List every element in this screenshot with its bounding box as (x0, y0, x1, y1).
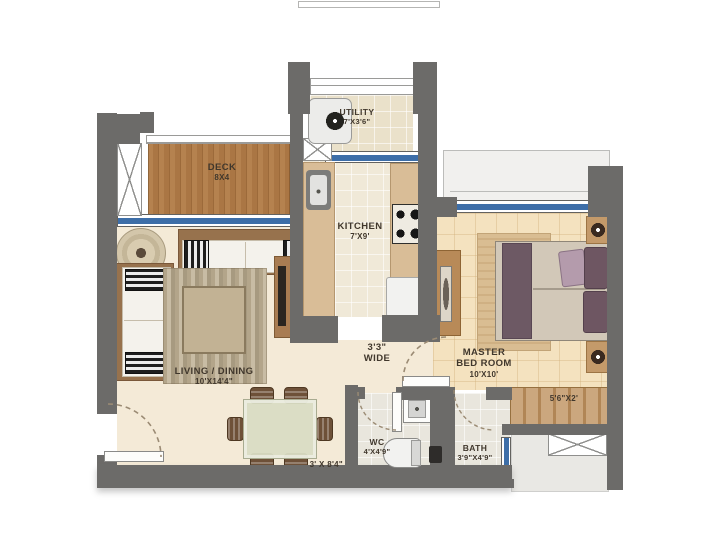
wall-bath-top (486, 387, 512, 400)
entrance-door-leaf (104, 451, 164, 462)
bed-pillow-bottom (583, 291, 608, 333)
master-dim: 10'X10' (448, 370, 520, 380)
wardrobe-dim-label: 5'6"X2' (534, 394, 594, 404)
sofa-top-cushion-left (184, 240, 209, 270)
kitchen-label: KITCHEN 7'X9' (326, 221, 394, 242)
bath-name: BATH (446, 443, 504, 453)
sofa-left-cushion-top (125, 269, 168, 291)
deck-sliding-door (117, 214, 292, 227)
wall-wc-top-left (345, 387, 365, 399)
outdoor-duct (548, 433, 607, 456)
kitchen-service-window (325, 151, 423, 163)
passage-label: 3'3" WIDE (350, 342, 404, 365)
dining-dim: 3' X 8'4" (283, 460, 343, 470)
bath-dim: 3'9"X4'9" (446, 453, 504, 462)
dining-chair (227, 417, 244, 441)
wall-below-wardrobe (502, 424, 608, 435)
wall-topleft-b (140, 112, 154, 133)
utility-name: UTILITY (328, 107, 386, 117)
living-name: LIVING / DINING (156, 366, 272, 377)
sofa-left-seam (124, 320, 167, 321)
deck-label: DECK 8X4 (186, 162, 258, 183)
master-name-line2: BED ROOM (448, 358, 520, 369)
tv-screen (278, 266, 286, 326)
utility-label: UTILITY 7'X3'6" (328, 107, 386, 126)
wc-door-leaf (392, 392, 402, 432)
deck-name: DECK (186, 162, 258, 173)
bath-label: BATH 3'9"X4'9" (446, 443, 504, 462)
utility-dim: 7'X3'6" (328, 117, 386, 126)
washbasin-bowl (408, 400, 426, 418)
shaft-duct-left (117, 143, 142, 216)
wall-right (607, 215, 623, 490)
wall-master-top-stub (437, 197, 457, 217)
top-projection-line (298, 1, 440, 8)
master-door-leaf (402, 376, 450, 387)
utility-window (310, 78, 415, 95)
wc-dim: 4'X4'9" (353, 447, 401, 456)
deck-railing (146, 135, 294, 144)
sofa-top-seam (245, 242, 246, 269)
passage-wide: WIDE (350, 353, 404, 364)
wall-window-stub (500, 479, 514, 488)
wall-utility-column-left (288, 62, 310, 114)
dresser-mirror (440, 266, 452, 322)
wall-topleft-a (101, 114, 140, 144)
living-dim: 10'X14'4" (156, 377, 272, 387)
kitchen-sink-basin (310, 175, 327, 205)
coffee-table (182, 286, 246, 354)
master-window (455, 200, 592, 213)
master-name-line1: MASTER (448, 347, 520, 358)
wall-utility-column-right (413, 62, 437, 114)
dining-dim-label: 3' X 8'4" (283, 460, 343, 470)
master-window-ledge (443, 150, 610, 204)
wall-kitchen-left (290, 95, 303, 343)
deck-dim: 8X4 (186, 173, 258, 183)
wall-kitchen-right (418, 95, 437, 319)
shower-head (429, 446, 442, 463)
wc-name: WC (353, 437, 401, 447)
kitchen-name: KITCHEN (326, 221, 394, 232)
master-window-sill-line (450, 191, 593, 192)
bed-runner (502, 243, 532, 339)
wardrobe-dim: 5'6"X2' (534, 394, 594, 404)
wall-left-upper (97, 113, 117, 414)
wall-kitchen-bottom-left (303, 316, 338, 343)
floor-plan-canvas: DECK 8X4 UTILITY 7'X3'6" KITCHEN 7'X9' L… (0, 0, 723, 543)
bed-pillow-top (584, 247, 608, 289)
wall-master-top-right (588, 166, 623, 217)
wc-label: WC 4'X4'9" (353, 437, 401, 456)
master-bedroom-label: MASTER BED ROOM 10'X10' (448, 347, 520, 379)
wall-kitchen-bottom-right (382, 315, 440, 342)
toilet-tank (411, 440, 421, 466)
dining-chair (316, 417, 333, 441)
kitchen-dim: 7'X9' (326, 232, 394, 242)
passage-width: 3'3" (350, 342, 404, 353)
living-dining-label: LIVING / DINING 10'X14'4" (156, 366, 272, 387)
dining-table (243, 399, 317, 459)
